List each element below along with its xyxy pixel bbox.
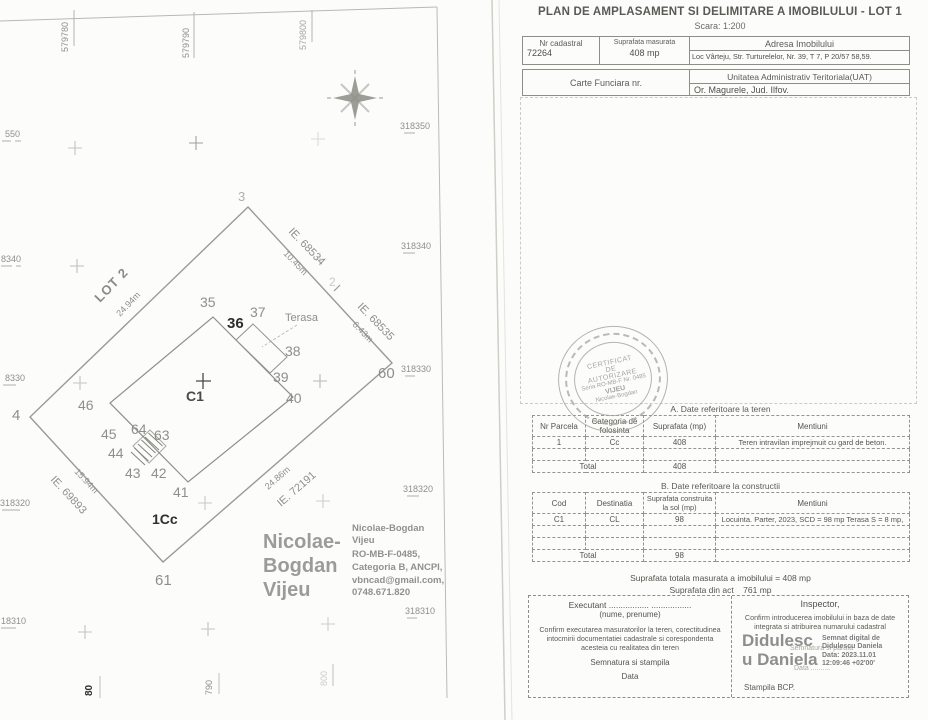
table-a-cell: Teren intravilan imprejmuit cu gard de b… (716, 437, 910, 449)
bottom-ticks (100, 664, 333, 698)
table-a-header: Mentiuni (716, 416, 910, 437)
point-label-43: 43 (125, 465, 141, 481)
table-b-total-label: Total (533, 550, 644, 562)
point-label-35: 35 (200, 294, 216, 310)
easting-label-bottom: 80 (84, 684, 95, 696)
fold-line-2 (499, 0, 512, 720)
executant-confirm-text: Confirm executarea masuratorilor la tere… (537, 625, 723, 652)
page-top-border (0, 7, 437, 21)
point-label-37: 37 (250, 304, 266, 320)
cadastral-form: PLAN DE AMPLASAMENT SI DELIMITARE A IMOB… (512, 0, 928, 720)
northing-label-left: 8330 (5, 373, 25, 383)
northing-label-left: 550 (5, 129, 20, 139)
northing-dashes-right (403, 133, 419, 618)
table-b-empty-row (533, 538, 910, 550)
ie-72191-dimension: 24.86m (263, 464, 292, 491)
table-a-total-row: Total 408 (533, 461, 910, 473)
easting-label: 579800 (298, 20, 308, 50)
executant-title: Executant ................. ............… (537, 600, 723, 610)
easting-label: 579790 (181, 28, 191, 58)
table-a-total-value: 408 (644, 461, 716, 473)
point-label-36: 36 (227, 315, 244, 332)
table-a-header: Suprafata (mp) (644, 416, 716, 437)
signature-small-line: Categoria B, ANCPI, (352, 562, 442, 573)
lot2-dimension: 24.94m (114, 290, 142, 319)
table-a-cell: Cc (586, 437, 644, 449)
ie-69893-dimension: 15.94m (73, 467, 101, 496)
table-a-total-label: Total (533, 461, 644, 473)
northing-label-right: 318330 (401, 364, 431, 374)
northing-dashes-left (1, 141, 21, 628)
digital-signature-line: Data: 2023.11.01 (822, 652, 904, 660)
terasa-label: Terasa (285, 312, 319, 324)
table-a-cell: 1 (533, 437, 586, 449)
site-plan-drawing: 579780 579790 579800 80 790 800 550 8340… (0, 0, 515, 720)
northing-label-left: 18310 (1, 616, 26, 626)
digital-signature-line: Semnat digital de (822, 635, 904, 643)
inspector-stamp-label: Stampila BCP. (744, 683, 795, 692)
point-label-64: 64 (131, 421, 147, 437)
totals-block: Suprafata totala masurata a imobilului =… (532, 573, 909, 595)
point-label-2: 2 (329, 275, 336, 289)
point-label-42: 42 (151, 465, 167, 481)
point-label-44: 44 (108, 445, 124, 461)
adresa-cell: Adresa Imobilului Loc Vârteju, Str. Turt… (690, 36, 910, 65)
northing-label-right: 318350 (400, 121, 430, 131)
table-b-wrap: B. Date referitoare la constructii Cod D… (532, 481, 909, 562)
carte-funciara-label: Carte Funciara nr. (570, 78, 642, 88)
executant-cell: Executant ................. ............… (529, 596, 732, 697)
easting-label-bottom: 790 (204, 680, 214, 695)
point-label-39: 39 (273, 369, 289, 385)
northing-label-left: 8340 (1, 254, 21, 264)
suprafata-masurata-value: 408 mp (600, 48, 689, 58)
table-a: Nr Parcela Categoria de folosinta Supraf… (532, 415, 910, 473)
inspector-title: Inspector, (732, 599, 908, 609)
table-b-total-value: 98 (644, 550, 716, 562)
executant-date-label: Data (537, 672, 723, 681)
nr-cadastral-value: 72264 (523, 48, 599, 58)
signature-small-line: RO-MB-F-0485, (352, 549, 420, 560)
table-b-header: Mentiuni (716, 493, 910, 514)
building-c1-label: C1 (186, 388, 204, 404)
table-b-empty-row (533, 526, 910, 538)
point-label-38: 38 (285, 343, 301, 359)
table-b-row: C1 CL 98 Locuinta. Parter, 2023, SCD = 9… (533, 514, 910, 526)
northing-label-right: 318310 (405, 606, 435, 616)
signature-big-line: Nicolae- (263, 531, 341, 553)
uat-label: Unitatea Administrativ Teritoriala(UAT) (690, 70, 909, 82)
table-a-header: Nr Parcela (533, 416, 586, 437)
digital-signature-line: 12:09:46 +02'00' (822, 660, 904, 668)
point-label-40: 40 (286, 390, 302, 406)
signature-box: Executant ................. ............… (528, 595, 909, 698)
table-b: Cod Destinatia Suprafata construita la s… (532, 492, 910, 562)
inspector-signature-zone: Didulesc u Daniela Semnatura si parafa D… (732, 632, 908, 678)
executant-sign-label: Semnatura si stampila (537, 658, 723, 667)
point-label-45: 45 (101, 426, 117, 442)
table-b-cell: C1 (533, 514, 586, 526)
north-compass-icon (327, 70, 383, 126)
uat-value: Or. Magurele, Jud. Ilfov. (690, 84, 909, 95)
total-act-label: Suprafata din act (669, 585, 733, 595)
inspector-cell: Inspector, Confirm introducerea imobilul… (732, 596, 908, 697)
signature-big-line: Bogdan (263, 555, 337, 577)
table-b-cell: 98 (644, 514, 716, 526)
easting-label: 579780 (60, 22, 70, 52)
executant-signature: Nicolae- Bogdan Vijeu Nicolae-Bogdan Vij… (263, 523, 444, 601)
table-b-header-row: Cod Destinatia Suprafata construita la s… (533, 493, 910, 514)
inspector-digital-signature: Semnat digital de Didulescu Daniela Data… (822, 635, 904, 669)
digital-signature-line: Didulescu Daniela (822, 643, 904, 651)
total-measured-line: Suprafata totala masurata a imobilului =… (532, 573, 909, 583)
page-title: PLAN DE AMPLASAMENT SI DELIMITARE A IMOB… (512, 6, 928, 18)
scanned-cadastral-plan: 579780 579790 579800 80 790 800 550 8340… (0, 0, 928, 720)
uat-cell: Unitatea Administrativ Teritoriala(UAT) … (690, 69, 910, 96)
table-a-row: 1 Cc 408 Teren intravilan imprejmuit cu … (533, 437, 910, 449)
point-label-61: 61 (155, 572, 172, 589)
table-b-header: Suprafata construita la sol (mp) (644, 493, 716, 514)
total-act-line: Suprafata din act 761 mp (532, 585, 909, 595)
table-b-cell: CL (586, 514, 644, 526)
header-row-2: Carte Funciara nr. Unitatea Administrati… (522, 69, 910, 96)
signature-small-line: vbncad@gmail.com, (352, 575, 444, 586)
table-a-header: Categoria de folosinta (586, 416, 644, 437)
total-act-value: 761 mp (743, 585, 771, 595)
page-right-border (437, 7, 447, 698)
table-a-wrap: A. Date referitoare la teren Nr Parcela … (532, 404, 909, 473)
signature-big-line: Vijeu (263, 579, 310, 601)
table-a-header-row: Nr Parcela Categoria de folosinta Supraf… (533, 416, 910, 437)
scale-label: Scara: 1:200 (512, 21, 928, 31)
point-label-63: 63 (154, 427, 170, 443)
point-label-3: 3 (238, 189, 245, 204)
table-a-empty-row (533, 449, 910, 461)
inspector-confirm-text: Confirm introducerea imobilului in baza … (732, 613, 908, 631)
parcel-1cc-label: 1Cc (152, 511, 178, 527)
point-label-41: 41 (173, 484, 189, 500)
nr-cadastral-cell: Nr cadastral 72264 (522, 36, 600, 65)
table-b-title: B. Date referitoare la constructii (532, 481, 909, 492)
adresa-label: Adresa Imobilului (690, 37, 909, 49)
point-label-60: 60 (378, 365, 395, 382)
table-b-header: Cod (533, 493, 586, 514)
signature-small-line: 0748.671.820 (352, 587, 410, 598)
point-label-4: 4 (12, 407, 20, 424)
table-b-cell: Locuinta. Parter, 2023, SCD = 98 mp Tera… (716, 514, 910, 526)
executant-name-hint: (nume, prenume) (537, 610, 723, 619)
header-row-1: Nr cadastral 72264 Suprafata masurata 40… (522, 36, 910, 65)
easting-label-bottom: 800 (319, 671, 329, 686)
table-b-total-row: Total 98 (533, 550, 910, 562)
fold-line (492, 0, 505, 720)
table-b-header: Destinatia (586, 493, 644, 514)
table-a-cell: 408 (644, 437, 716, 449)
table-a-title: A. Date referitoare la teren (532, 404, 909, 415)
point-label-46: 46 (78, 397, 94, 413)
carte-funciara-cell: Carte Funciara nr. (522, 69, 690, 96)
suprafata-masurata-cell: Suprafata masurata 408 mp (600, 36, 690, 65)
signature-small-line: Vijeu (352, 535, 375, 546)
suprafata-masurata-label: Suprafata masurata (600, 37, 689, 46)
signature-small-line: Nicolae-Bogdan (352, 523, 425, 534)
nr-cadastral-label: Nr cadastral (523, 37, 599, 48)
northing-label-right: 318320 (403, 484, 433, 494)
plan-frame (520, 97, 917, 404)
northing-label-right: 318340 (401, 241, 431, 251)
adresa-value: Loc Vârteju, Str. Turturelelor, Nr. 39, … (690, 51, 909, 61)
northing-label-left: 318320 (0, 498, 30, 508)
